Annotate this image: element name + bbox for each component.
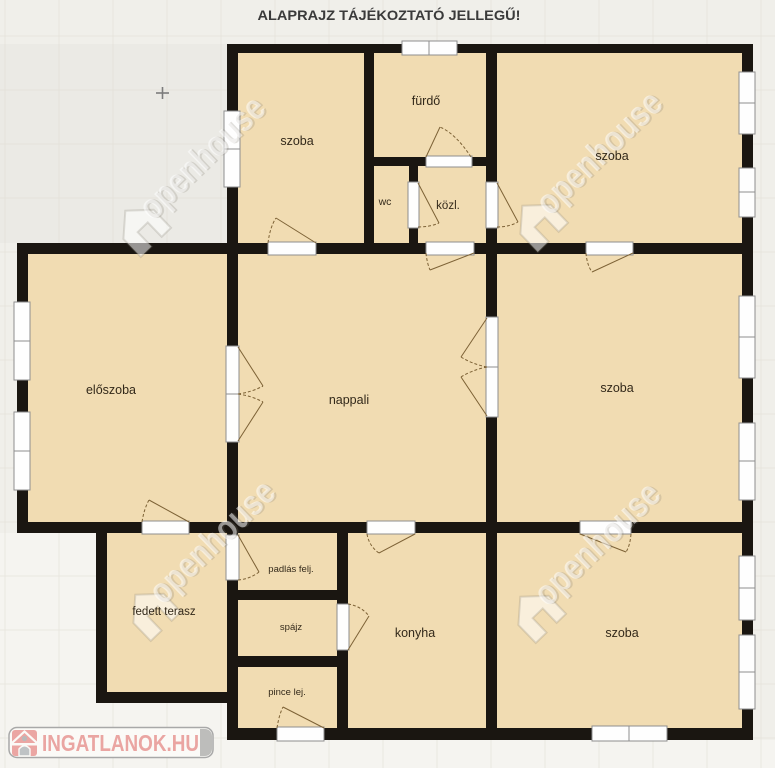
svg-text:spájz: spájz xyxy=(280,622,302,633)
svg-text:előszoba: előszoba xyxy=(86,383,136,397)
svg-text:szoba: szoba xyxy=(280,134,313,148)
svg-text:konyha: konyha xyxy=(395,626,435,640)
svg-text:szoba: szoba xyxy=(600,381,633,395)
svg-text:pince lej.: pince lej. xyxy=(268,687,306,698)
svg-text:wc: wc xyxy=(378,196,392,208)
svg-text:ALAPRAJZ TÁJÉKOZTATÓ JELLEGŰ!: ALAPRAJZ TÁJÉKOZTATÓ JELLEGŰ! xyxy=(258,6,521,23)
svg-text:közl.: közl. xyxy=(436,200,460,212)
svg-text:INGATLANOK.HU: INGATLANOK.HU xyxy=(42,730,199,756)
svg-text:nappali: nappali xyxy=(329,393,369,407)
svg-text:szoba: szoba xyxy=(605,626,638,640)
svg-text:fürdő: fürdő xyxy=(412,94,441,108)
svg-text:fedett terasz: fedett terasz xyxy=(132,606,196,618)
svg-text:szoba: szoba xyxy=(595,149,628,163)
svg-text:padlás felj.: padlás felj. xyxy=(268,564,313,575)
